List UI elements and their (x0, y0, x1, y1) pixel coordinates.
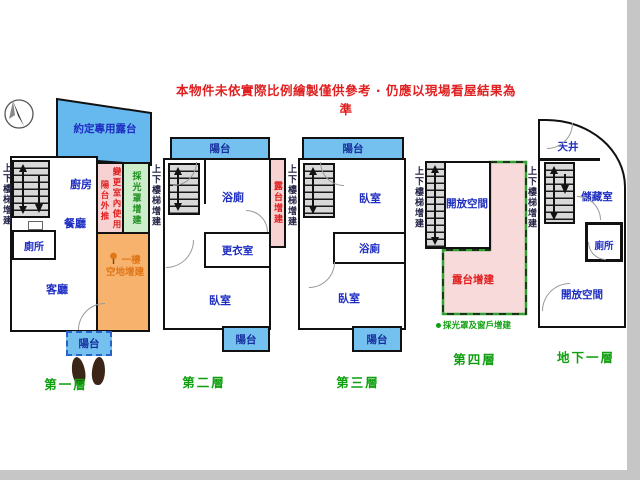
f2-bedroom-label: 臥室 (197, 292, 243, 308)
f2-balcony-top: 陽台 (170, 137, 270, 160)
f4-skylight-note: 採光罩及窗戶增建 (436, 319, 511, 331)
f3-stair-note: 上下樓梯增建 (285, 164, 298, 248)
f4-floor-name: 第四層 (443, 349, 507, 368)
f5-stair-note: 上下樓梯增建 (525, 166, 538, 250)
f3-balcony-bottom: 陽台 (352, 326, 402, 352)
f1-staircase (12, 160, 50, 218)
f1-toilet-label: 廁所 (24, 238, 44, 253)
f2-bath-label: 浴廁 (210, 189, 256, 205)
f3-balcony-top-label: 陽台 (343, 141, 364, 156)
f4-skylight-note-text: 採光罩及窗戶增建 (443, 319, 511, 331)
f3-floor-name: 第三層 (326, 372, 390, 391)
f1-ground-addition-note: 一樓 空地增建 (100, 252, 150, 280)
f1-ground-note-line2: 空地增建 (100, 267, 150, 279)
disclaimer-title: 本物件未依實際比例繪製僅供參考 · 仍應以現場看屋結果為準 (170, 80, 522, 118)
bullet-dot-icon (436, 323, 441, 328)
f4-open-space-label: 開放空間 (438, 196, 496, 211)
f1-balcony-conversion-strip: 陽台外推 變更室內使用 (96, 162, 124, 234)
f1-balcony: 陽台 (66, 331, 112, 356)
f1-skylight-strip: 採光罩增建 (122, 162, 150, 234)
f1-note-interior-use: 變更室內使用 (110, 167, 122, 230)
f1-kitchen-label: 廚房 (58, 176, 104, 192)
f2-floor-name: 第二層 (172, 372, 236, 391)
f2-stair-note: 上下樓梯增建 (149, 164, 162, 248)
f3-balcony-bottom-label: 陽台 (367, 332, 388, 347)
f3-bath-room: 浴廁 (333, 232, 406, 264)
f1-floor-name: 第一層 (34, 374, 98, 393)
f2-terrace-addition-strip: 露台增建 (269, 158, 286, 248)
f5-floor-name: 地下一層 (546, 347, 626, 366)
f3-bath-label: 浴廁 (359, 241, 380, 256)
f1-ground-note-line1: 一樓 (122, 255, 141, 266)
f2-balcony-bottom: 陽台 (222, 326, 270, 352)
f3-balcony-top: 陽台 (302, 137, 404, 160)
f4-terrace-note-label: 露台增建 (443, 272, 503, 287)
f3-bedroom-bottom-label: 臥室 (326, 290, 372, 306)
f1-toilet-fixture (28, 221, 43, 230)
f2-terrace-note: 露台增建 (271, 181, 284, 225)
f1-toilet-room: 廁所 (12, 230, 56, 260)
f4-stair-note: 上下樓梯增建 (412, 166, 425, 250)
f1-note-skylight: 採光罩增建 (130, 171, 143, 226)
f1-balcony-label: 陽台 (79, 336, 100, 351)
floorplan-canvas: 本物件未依實際比例繪製僅供參考 · 仍應以現場看屋結果為準 約定專用露台 陽台外… (0, 0, 640, 480)
stair-arrow-icon (546, 164, 573, 222)
f2-balcony-top-label: 陽台 (210, 141, 231, 156)
f2-balcony-bottom-label: 陽台 (236, 332, 257, 347)
f2-closet-label: 更衣室 (222, 243, 254, 258)
f1-dining-label: 餐廳 (52, 215, 98, 231)
f2-inner-wall (204, 160, 206, 204)
f5-lightwell-wall (540, 158, 600, 161)
compass-icon (2, 95, 36, 131)
f3-bedroom-top-label: 臥室 (347, 190, 393, 206)
f1-agreed-terrace-label: 約定專用露台 (60, 121, 150, 136)
f1-living-label: 客廳 (34, 281, 80, 297)
pushpin-icon (109, 252, 118, 265)
f2-closet-room: 更衣室 (204, 232, 271, 268)
stair-arrow-icon (14, 162, 48, 216)
